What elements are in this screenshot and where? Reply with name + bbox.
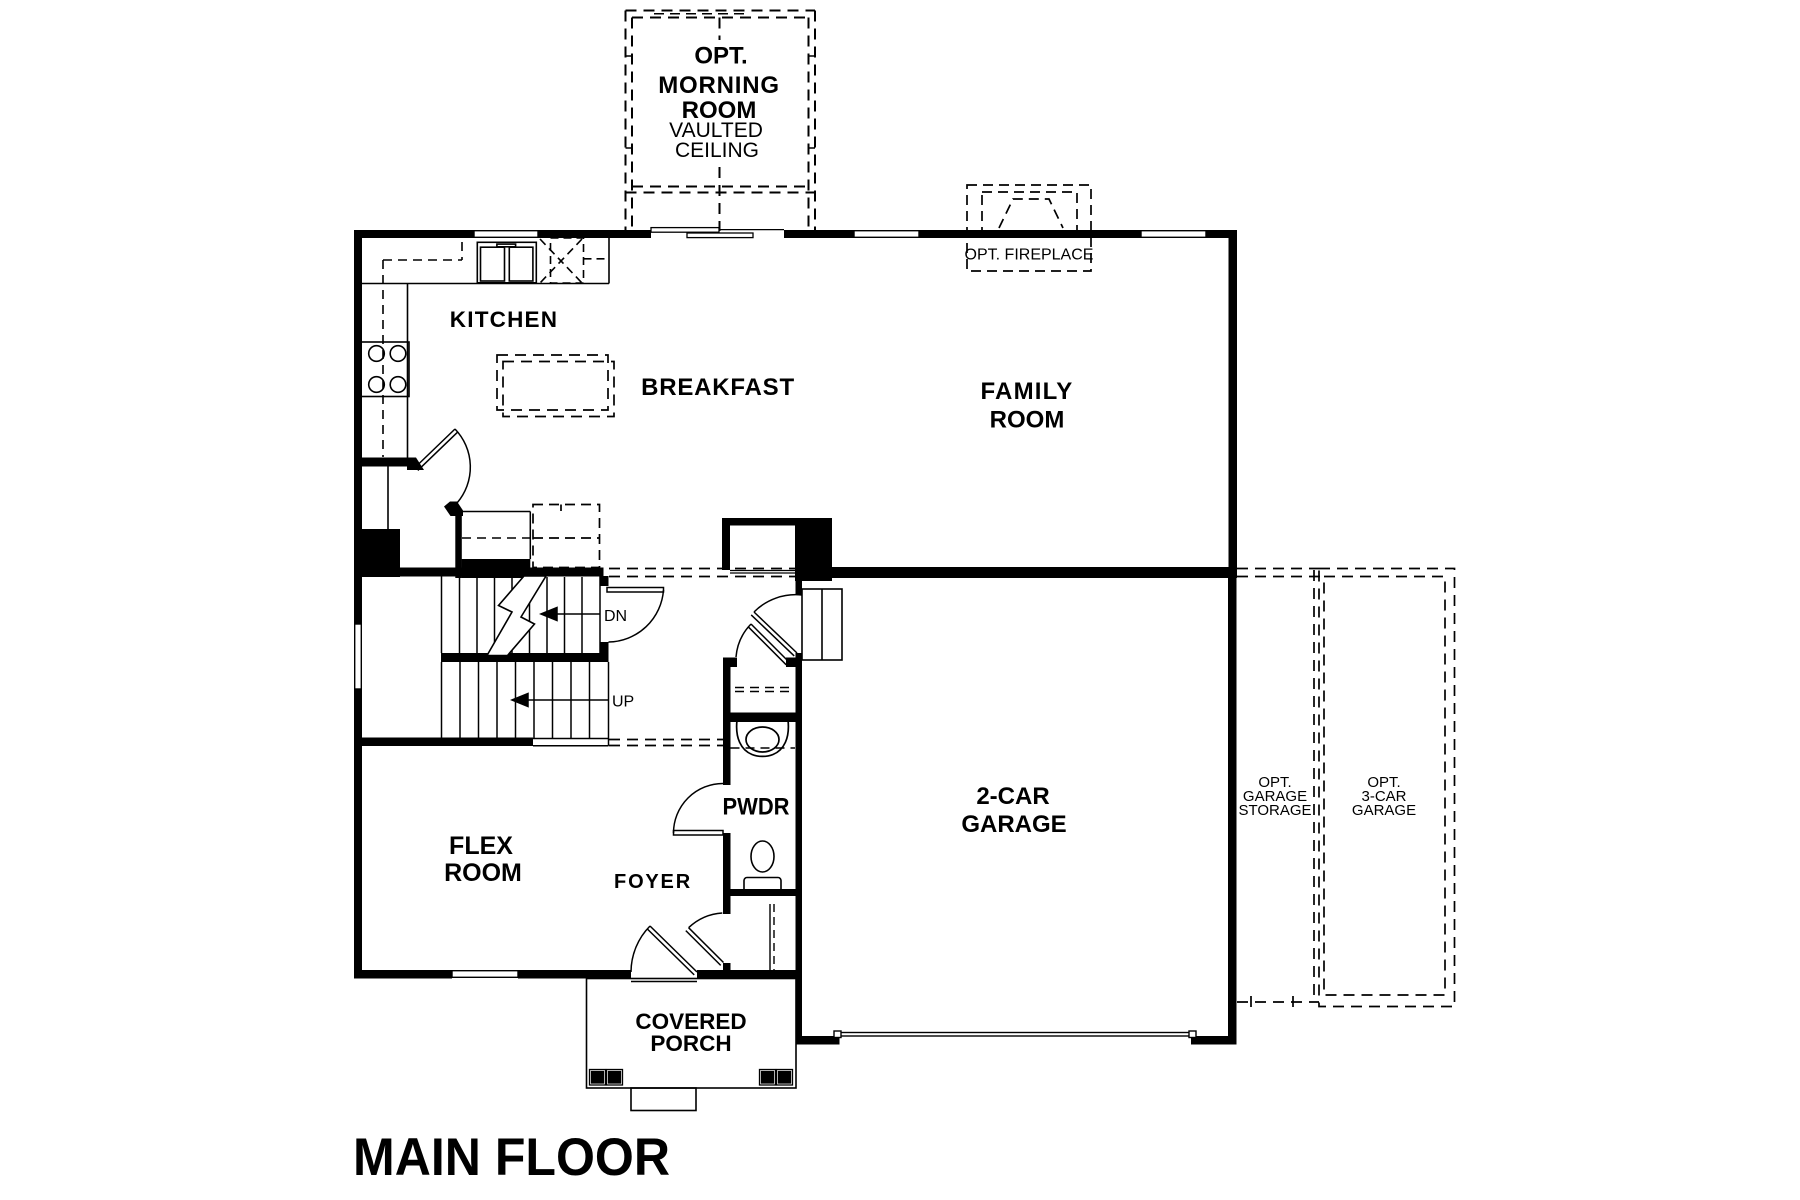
svg-text:UP: UP (612, 694, 634, 711)
svg-text:CEILING: CEILING (675, 139, 759, 162)
svg-text:MORNING: MORNING (658, 72, 780, 99)
svg-text:STORAGE: STORAGE (1238, 802, 1311, 819)
svg-text:OPT.: OPT. (694, 43, 747, 70)
svg-text:PORCH: PORCH (650, 1031, 731, 1056)
svg-text:PWDR: PWDR (723, 794, 790, 821)
svg-text:GARAGE: GARAGE (961, 811, 1066, 838)
svg-text:2-CAR: 2-CAR (976, 783, 1049, 810)
svg-text:FOYER: FOYER (614, 871, 692, 893)
svg-text:OPT. FIREPLACE: OPT. FIREPLACE (965, 247, 1094, 264)
svg-text:FLEX: FLEX (449, 832, 513, 860)
svg-text:KITCHEN: KITCHEN (450, 307, 558, 332)
svg-text:FAMILY: FAMILY (981, 378, 1074, 405)
svg-text:DN: DN (604, 608, 627, 625)
svg-text:ROOM: ROOM (990, 407, 1065, 434)
svg-text:MAIN FLOOR: MAIN FLOOR (353, 1128, 670, 1187)
svg-text:ROOM: ROOM (444, 859, 522, 887)
svg-text:BREAKFAST: BREAKFAST (641, 374, 795, 401)
svg-text:GARAGE: GARAGE (1352, 802, 1416, 819)
